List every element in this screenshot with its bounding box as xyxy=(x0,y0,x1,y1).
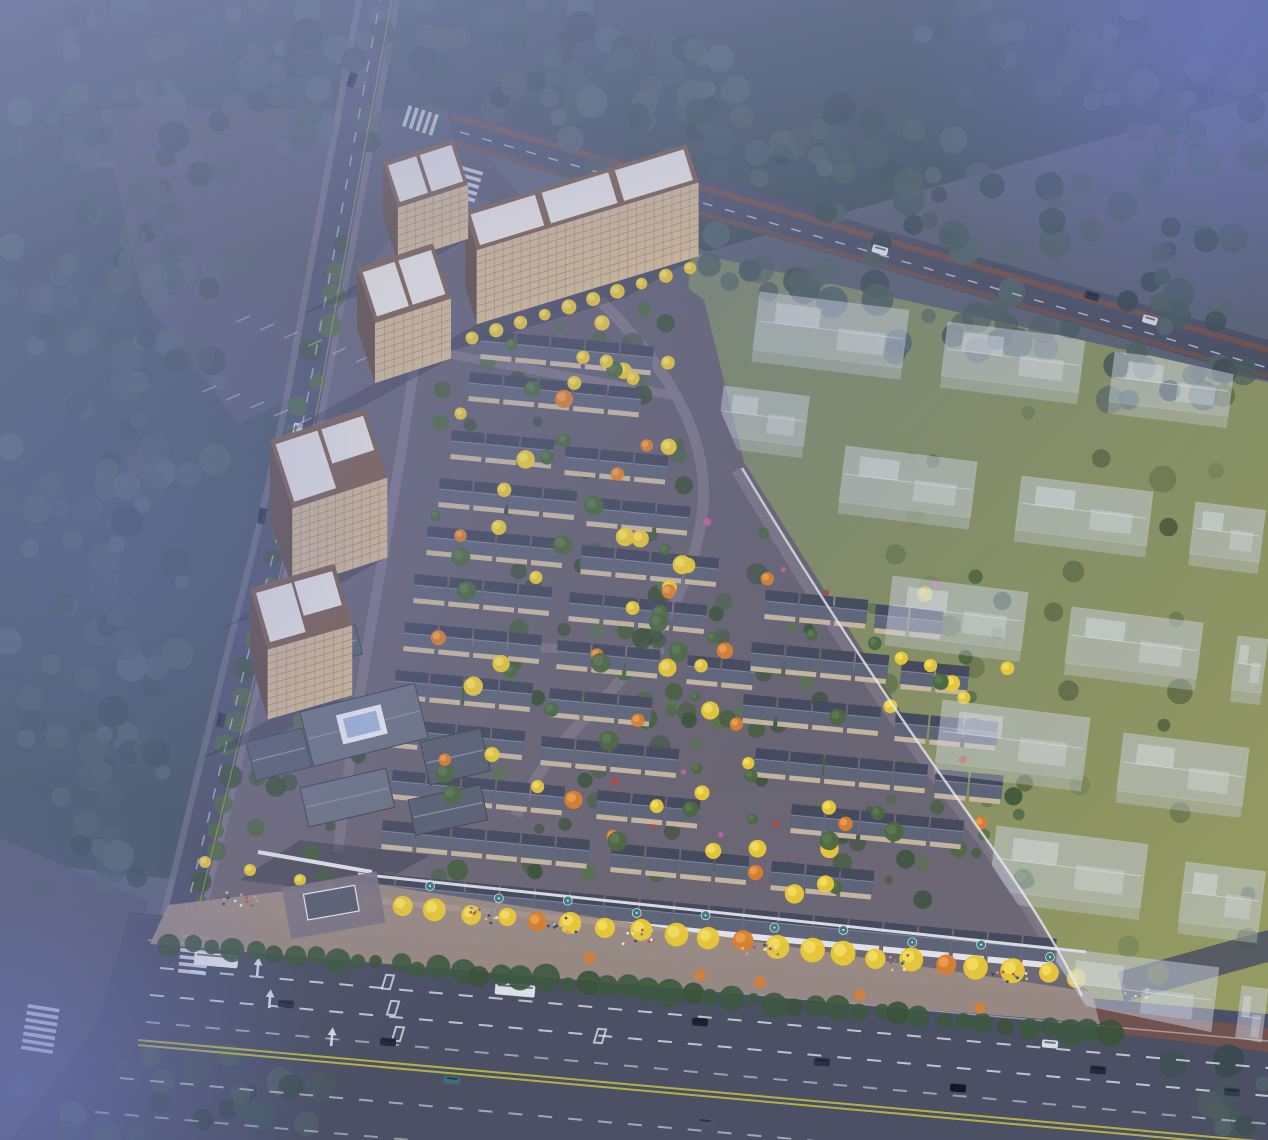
aerial-rendering xyxy=(0,0,1268,1140)
fog-overlay xyxy=(0,0,1268,1140)
masterplan-rendering xyxy=(0,0,1268,1140)
